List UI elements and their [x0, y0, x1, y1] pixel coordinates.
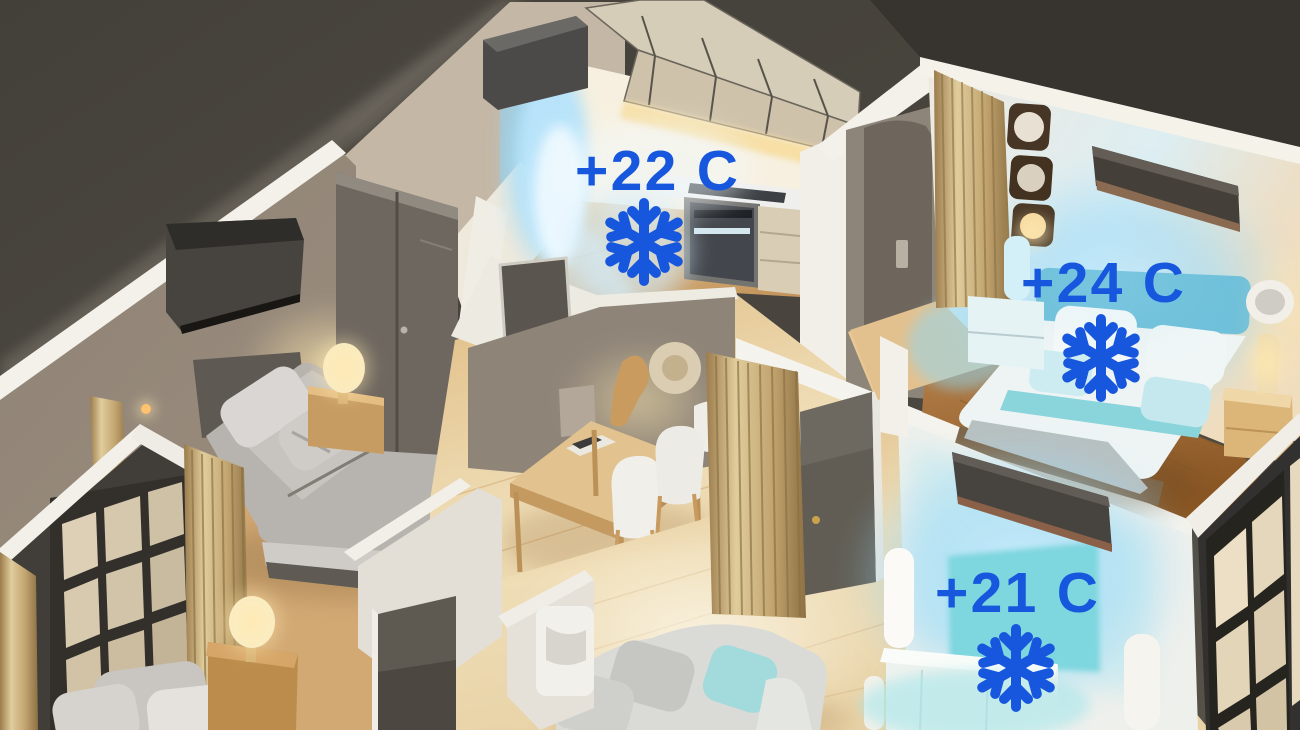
svg-text:+21 C: +21 C — [935, 561, 1100, 625]
svg-text:+24 C: +24 C — [1021, 251, 1186, 315]
svg-text:+22 C: +22 C — [575, 139, 740, 203]
